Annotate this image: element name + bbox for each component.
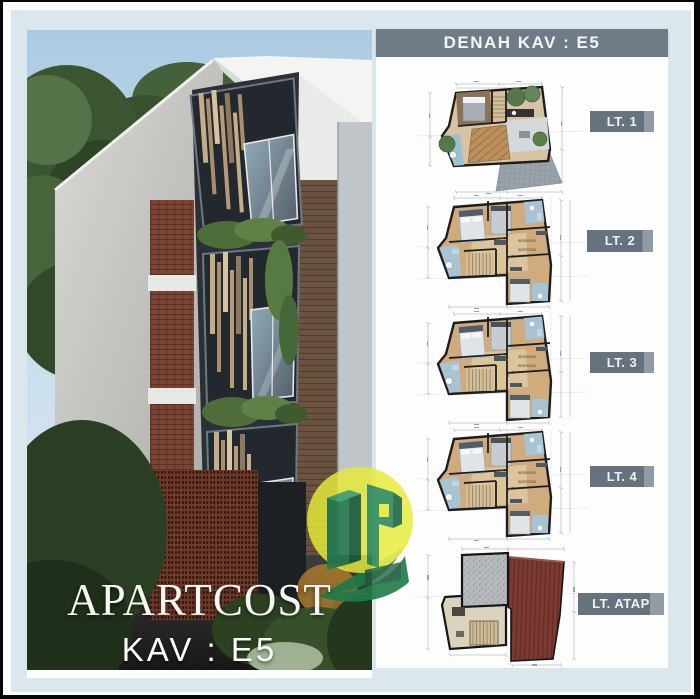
floor-plan-lt2 [414,195,590,311]
floor-label-atap: LT. ATAP [578,593,664,615]
floor-label-lt1: LT. 1 [590,111,654,132]
floor-plan-atap [412,547,604,667]
apartcost-logo-icon [305,462,417,602]
window-unit [190,78,304,235]
board-canvas: APARTCOST KAV : E5 [11,10,691,692]
floor-plan-lt4 [414,427,590,543]
plans-panel: LT. 1 LT. 2 LT. 3 LT. 4 LT. ATAP [376,57,668,668]
panel-header: DENAH KAV : E5 [376,29,668,57]
floor-plan-lt3 [414,311,590,427]
white-frame: APARTCOST KAV : E5 [3,2,694,695]
floor-label-lt2: LT. 2 [587,230,653,252]
floor-plan-lt1 [416,81,588,195]
floor-label-lt3: LT. 3 [590,352,654,373]
floor-label-lt4: LT. 4 [590,466,654,487]
